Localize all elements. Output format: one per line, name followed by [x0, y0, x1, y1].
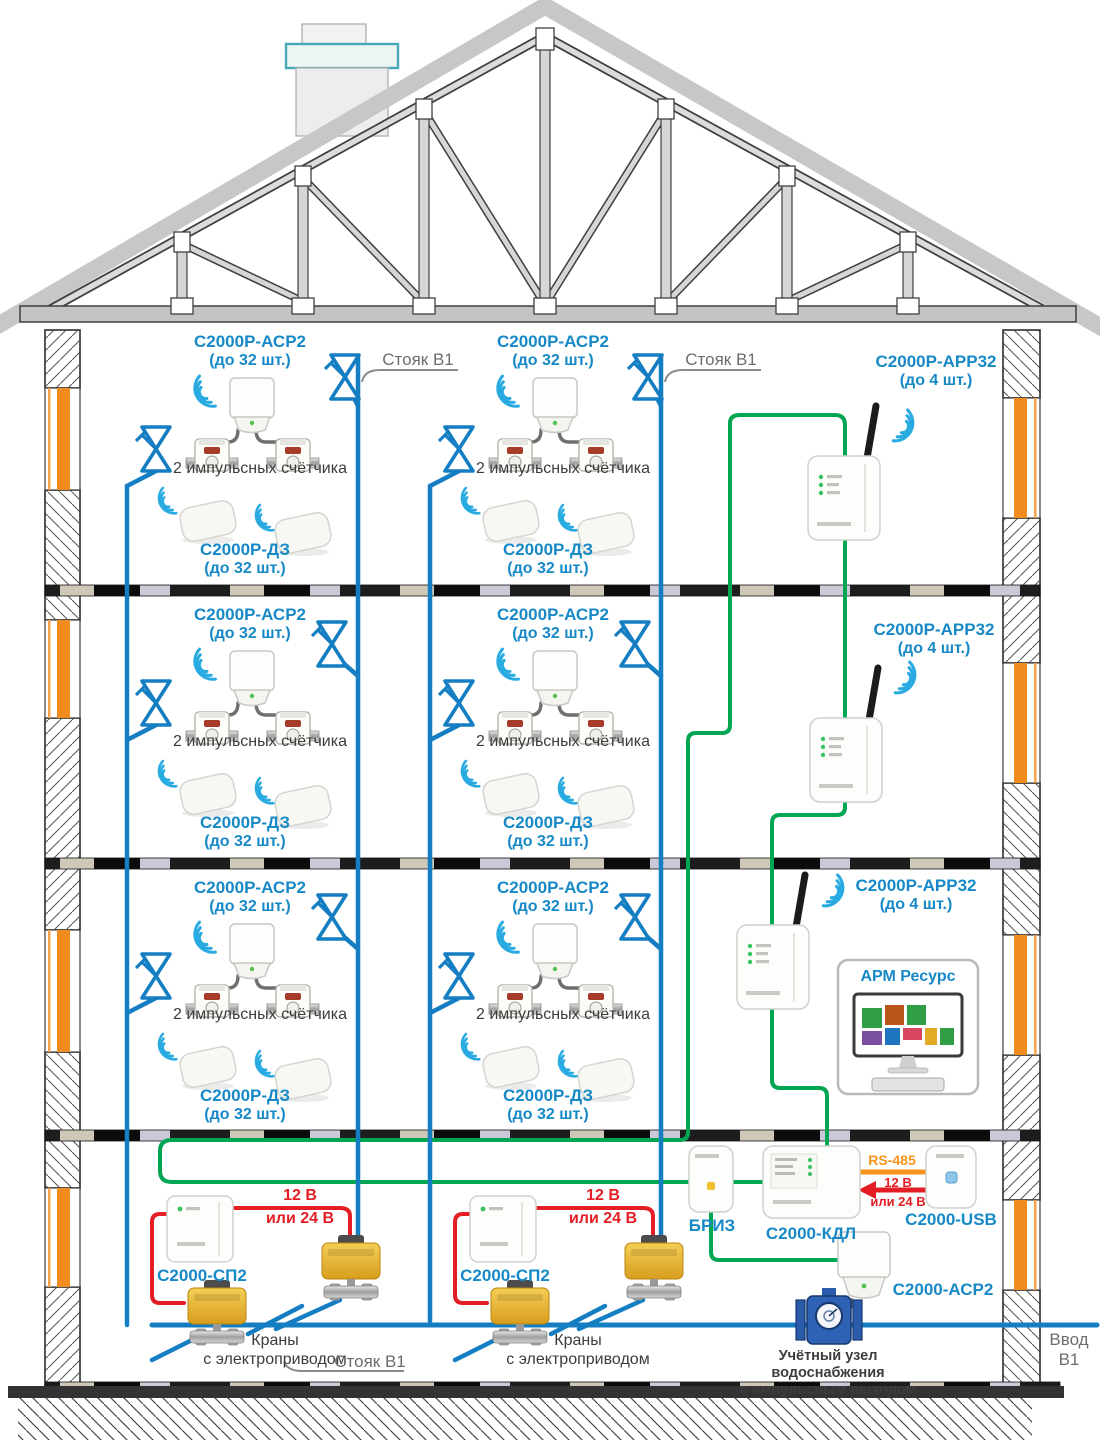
label-app32-f1: С2000Р-АРР32(до 4 шт.) — [858, 352, 1014, 390]
wifi-icon — [189, 376, 215, 412]
label-dz-f2a1: С2000Р-ДЗ(до 32 шт.) — [150, 813, 340, 851]
label-dz-f1a2: С2000Р-ДЗ(до 32 шт.) — [453, 540, 643, 578]
label-meters-f1a2: 2 импульсных счётчика — [438, 460, 688, 479]
label-dz-f3a2: С2000Р-ДЗ(до 32 шт.) — [453, 1086, 643, 1124]
dz-sensor — [481, 499, 541, 544]
label-kdl: С2000-КДЛ — [756, 1224, 866, 1244]
valve-icon — [439, 954, 473, 998]
label-dz-f3a1: С2000Р-ДЗ(до 32 шт.) — [150, 1086, 340, 1124]
label-arm: АРМ Ресурс — [843, 968, 973, 987]
label-usb: С2000-USB — [903, 1210, 999, 1230]
asr2-device — [230, 378, 274, 433]
kdl-device — [763, 1146, 860, 1218]
label-app32-f3: С2000Р-АРР32(до 4 шт.) — [838, 876, 994, 914]
label-dz-f1a1: С2000Р-ДЗ(до 32 шт.) — [150, 540, 340, 578]
label-meters-f1a1: 2 импульсных счётчика — [135, 460, 385, 479]
label-app32-f2: С2000Р-АРР32(до 4 шт.) — [856, 620, 1012, 658]
label-asr2-f2a1: С2000Р-АСР2(до 32 шт.) — [160, 605, 340, 643]
label-valves-2: Краныс электроприводом — [488, 1332, 668, 1369]
label-sp2-1: С2000-СП2 — [132, 1266, 272, 1286]
label-kdl-power-b: или 24 В — [864, 1194, 932, 1209]
wifi-icon — [457, 488, 479, 518]
valve-icon — [439, 681, 473, 725]
label-entry-unit: Учётный узел водоснабженияс импульсным в… — [728, 1348, 928, 1398]
dz-sensor — [178, 1045, 238, 1090]
wifi-icon — [251, 1051, 273, 1081]
label-rs485: RS-485 — [866, 1152, 918, 1168]
dz-sensor — [481, 772, 541, 817]
wifi-icon — [554, 778, 576, 808]
dz-sensor — [178, 499, 238, 544]
label-kdl-power-a: 12 В — [872, 1175, 924, 1190]
wifi-icon — [554, 1051, 576, 1081]
wifi-icon — [554, 505, 576, 535]
sp2-device — [167, 1196, 233, 1262]
asr2-device — [533, 924, 577, 979]
label-meters-f2a1: 2 импульсных счётчика — [135, 733, 385, 752]
motor-valve-icon — [625, 1235, 683, 1300]
label-riser-basement: Стояк В1 — [328, 1352, 412, 1372]
wifi-icon — [154, 488, 176, 518]
label-power-1a: 12 В — [255, 1187, 345, 1206]
asr2-device — [533, 378, 577, 433]
asr2-device — [533, 651, 577, 706]
wifi-icon — [154, 1034, 176, 1064]
wifi-icon — [189, 922, 215, 958]
wifi-icon — [893, 410, 918, 446]
wifi-icon — [154, 761, 176, 791]
label-power-2b: или 24 В — [558, 1210, 648, 1229]
label-meters-f2a2: 2 импульсных счётчика — [438, 733, 688, 752]
label-asr2-f3a1: С2000Р-АСР2(до 32 шт.) — [160, 878, 340, 916]
label-asr2-f2a2: С2000Р-АСР2(до 32 шт.) — [463, 605, 643, 643]
label-dz-f2a2: С2000Р-ДЗ(до 32 шт.) — [453, 813, 643, 851]
label-asr2-f1a1: С2000Р-АСР2(до 32 шт.) — [160, 332, 340, 370]
usb-adapter-device — [926, 1146, 976, 1208]
dz-sensor — [481, 1045, 541, 1090]
briz-device — [689, 1146, 733, 1212]
dz-sensor — [178, 772, 238, 817]
label-meters-f3a1: 2 импульсных счётчика — [135, 1006, 385, 1025]
label-riser-f1a2: Стояк В1 — [679, 350, 763, 370]
sp2-device — [470, 1196, 536, 1262]
wifi-icon — [492, 649, 518, 685]
wifi-icon — [492, 376, 518, 412]
asr2-device — [230, 651, 274, 706]
label-sp2-2: С2000-СП2 — [435, 1266, 575, 1286]
wifi-icon — [492, 922, 518, 958]
label-riser-f1a1: Стояк В1 — [376, 350, 460, 370]
wifi-icon — [457, 1034, 479, 1064]
roof-truss — [0, 6, 1100, 330]
label-power-2a: 12 В — [558, 1187, 648, 1206]
asr2-device — [230, 924, 274, 979]
wifi-icon — [251, 778, 273, 808]
label-asr2-f3a2: С2000Р-АСР2(до 32 шт.) — [463, 878, 643, 916]
label-acp2-entry: С2000-АСР2 — [888, 1280, 998, 1300]
label-asr2-f1a2: С2000Р-АСР2(до 32 шт.) — [463, 332, 643, 370]
diagram-canvas: С2000Р-АСР2(до 32 шт.) С2000Р-АСР2(до 32… — [0, 0, 1100, 1442]
wifi-icon — [895, 662, 920, 698]
valve-icon — [136, 954, 170, 998]
label-entry: Ввод В1 — [1038, 1330, 1100, 1369]
motor-valve-icon — [322, 1235, 380, 1300]
valve-icon — [136, 681, 170, 725]
label-meters-f3a2: 2 импульсных счётчика — [438, 1006, 688, 1025]
wifi-icon — [251, 505, 273, 535]
wifi-icon — [189, 649, 215, 685]
label-briz: БРИЗ — [684, 1216, 740, 1236]
wifi-icon — [457, 761, 479, 791]
label-power-1b: или 24 В — [255, 1210, 345, 1229]
